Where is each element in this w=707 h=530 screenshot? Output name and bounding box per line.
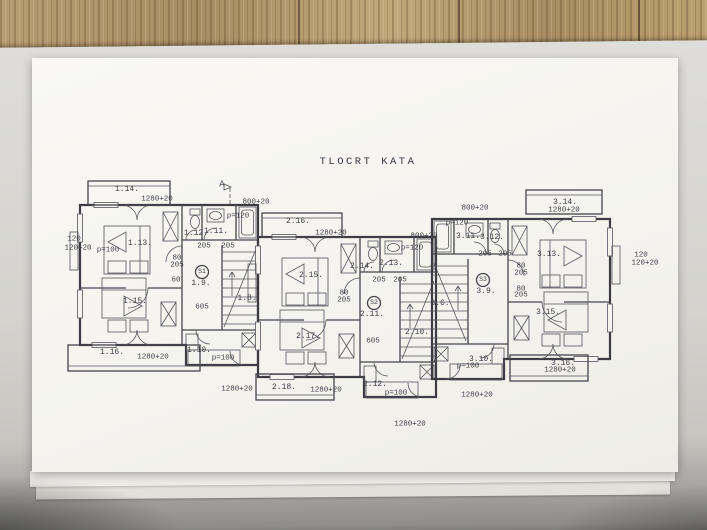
- room-label: 2.13.: [379, 260, 403, 268]
- floor-plan: TLOCRT KATA A800+201.14.1280+20120120+20…: [0, 0, 707, 530]
- stair-core-label: S1: [198, 269, 206, 276]
- dimension-label: 205: [170, 262, 184, 270]
- dimension-label: 205: [514, 292, 528, 300]
- dimension-label: 1280+20: [137, 354, 169, 362]
- dimension-label: 205: [197, 243, 211, 251]
- shadow: [557, 486, 707, 530]
- dimension-label: 120: [67, 236, 81, 244]
- dimension-label: 1280+20: [221, 386, 253, 394]
- dimension-label: 120+20: [631, 260, 658, 268]
- room-label: 2.16.: [286, 218, 310, 226]
- room-label: 2.10.: [405, 329, 429, 337]
- dimension-label: 1280+20: [394, 421, 426, 429]
- room-label: 1.11.: [204, 228, 228, 236]
- room-label: 1.14.: [115, 186, 139, 194]
- drawing-title: TLOCRT KATA: [320, 157, 417, 168]
- room-label: 1.10.: [187, 347, 211, 355]
- dimension-label: 205: [478, 251, 492, 259]
- room-label: 3.15.: [536, 309, 560, 317]
- section-label: A: [219, 181, 224, 190]
- room-label: 3.9.: [476, 288, 495, 296]
- dimension-label: 60: [171, 277, 180, 285]
- room-label: 1.13.: [128, 240, 152, 248]
- area-note-label: p=100: [457, 363, 480, 371]
- dimension-label: 800+20: [242, 199, 269, 207]
- shadow: [0, 476, 180, 530]
- dimension-label: 205: [337, 297, 351, 305]
- dimension-label: 205: [498, 251, 512, 259]
- room-label: 2.12.: [363, 381, 387, 389]
- dimension-label: 605: [195, 304, 209, 312]
- dimension-label: 205: [393, 277, 407, 285]
- dimension-label: 1280+20: [544, 367, 576, 375]
- room-label: 3.13.: [537, 251, 561, 259]
- room-label: 3.12.: [480, 234, 504, 242]
- room-label: 3.11.: [456, 233, 480, 241]
- room-label: 2.14.: [350, 263, 374, 271]
- dimension-label: 800+20: [461, 205, 488, 213]
- area-note-label: p=100: [212, 355, 235, 363]
- room-label: 1.9.: [191, 280, 210, 288]
- dimension-label: 205: [372, 277, 386, 285]
- room-label: 1.16.: [100, 349, 124, 357]
- stair-core-label: S3: [479, 277, 487, 284]
- room-label: 1.15.: [123, 298, 147, 306]
- room-label: 2.15.: [299, 272, 323, 280]
- desk-surface: TLOCRT KATA A800+201.14.1280+20120120+20…: [0, 0, 707, 530]
- area-note-label: p=120: [401, 245, 424, 253]
- room-label: 3.6.: [430, 300, 449, 308]
- dimension-label: 1280+20: [461, 392, 493, 400]
- dimension-label: 205: [514, 270, 528, 278]
- dimension-label: 1280+20: [315, 230, 347, 238]
- dimension-label: 205: [221, 243, 235, 251]
- room-label: 2.17.: [296, 333, 320, 341]
- area-note-label: p=100: [97, 247, 120, 255]
- stair-core-label: S2: [370, 300, 378, 307]
- room-label: 2.11.: [360, 311, 384, 319]
- area-note-label: p=120: [227, 213, 250, 221]
- room-label: 1.8.: [237, 295, 256, 303]
- section-marker: [224, 184, 231, 205]
- room-label: 2.18.: [272, 384, 296, 392]
- area-note-label: p=120: [446, 220, 469, 228]
- dimension-label: 1280+20: [141, 196, 173, 204]
- dimension-label: 605: [366, 338, 380, 346]
- unit-1-linework: [70, 203, 258, 367]
- dimension-label: 800+20: [410, 233, 437, 241]
- area-note-label: p=100: [385, 390, 408, 398]
- dimension-label: 120+20: [64, 245, 91, 253]
- dimension-label: 1280+20: [548, 207, 580, 215]
- dimension-label: 1280+20: [310, 387, 342, 395]
